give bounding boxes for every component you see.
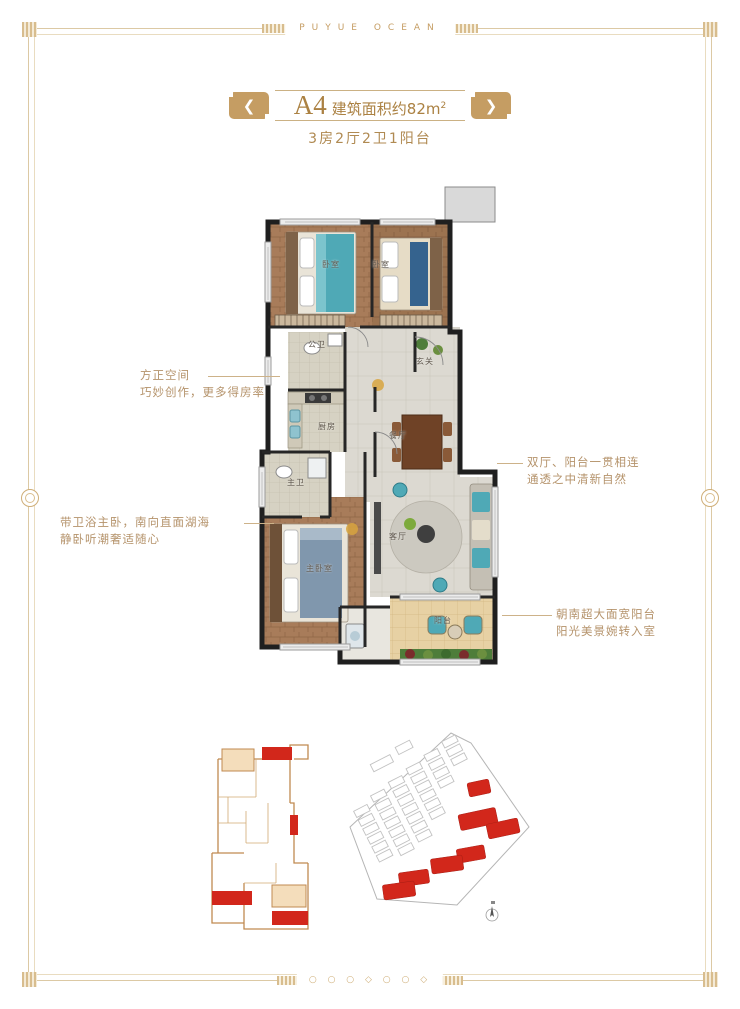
keyplan-svg: [198, 733, 338, 933]
unit-code: A4: [294, 91, 327, 120]
compass-icon: [486, 901, 498, 921]
room-label-bath-master: 主卫: [287, 477, 305, 488]
leader-line: [244, 523, 274, 524]
frame-corner-ornament: [22, 972, 37, 987]
room-label-balcony: 阳台: [434, 615, 452, 626]
frame-corner-ornament: [703, 22, 718, 37]
brand-text: PUYUE OCEAN: [285, 22, 455, 35]
floorplan-svg: [250, 172, 510, 672]
title-banner: ❮ A4 建筑面积约82m2 ❯: [229, 90, 511, 121]
poster-page: PUYUE OCEAN ○ ○ ○ ◇ ○ ○ ◇ ❮ A4 建筑面积约82m2…: [0, 0, 740, 1009]
room-label-bedroom1: 卧室: [322, 259, 340, 270]
area-text: 建筑面积约82m2: [332, 98, 446, 119]
title-ribbon: A4 建筑面积约82m2: [275, 90, 465, 121]
layout-subtitle: 3房2厅2卫1阳台: [308, 128, 432, 148]
arrow-left-icon: ❮: [229, 92, 269, 119]
bottom-ornament-icon: ○ ○ ○ ◇ ○ ○ ◇: [297, 974, 443, 986]
frame-corner-ornament: [703, 972, 718, 987]
frame-medallion-icon: [21, 489, 39, 507]
leader-line: [502, 615, 552, 616]
annotation-right-bottom: 朝南超大面宽阳台 阳光美景婉转入室: [556, 606, 656, 640]
room-label-kitchen: 厨房: [318, 421, 336, 432]
siteplan-svg: [345, 715, 550, 940]
room-label-bath-public: 公卫: [308, 339, 326, 350]
area-sup: 2: [440, 101, 446, 111]
room-label-bedroom2: 卧室: [372, 259, 390, 270]
arrow-right-icon: ❯: [471, 92, 511, 119]
frame-corner-ornament: [22, 22, 37, 37]
annotation-right-top: 双厅、阳台一贯相连 通透之中清新自然: [527, 454, 640, 488]
annotation-left-bottom: 带卫浴主卧，南向直面湖海 静卧听潮奢适随心: [60, 514, 210, 548]
leader-line: [208, 376, 280, 377]
room-label-living: 客厅: [389, 531, 407, 542]
annotation-left-top: 方正空间 巧妙创作，更多得房率: [140, 367, 265, 401]
leader-line: [497, 463, 523, 464]
frame-medallion-icon: [701, 489, 719, 507]
room-label-dining: 餐厅: [389, 430, 407, 441]
room-label-master-bedroom: 主卧室: [306, 563, 333, 574]
room-label-foyer: 玄关: [416, 356, 434, 367]
